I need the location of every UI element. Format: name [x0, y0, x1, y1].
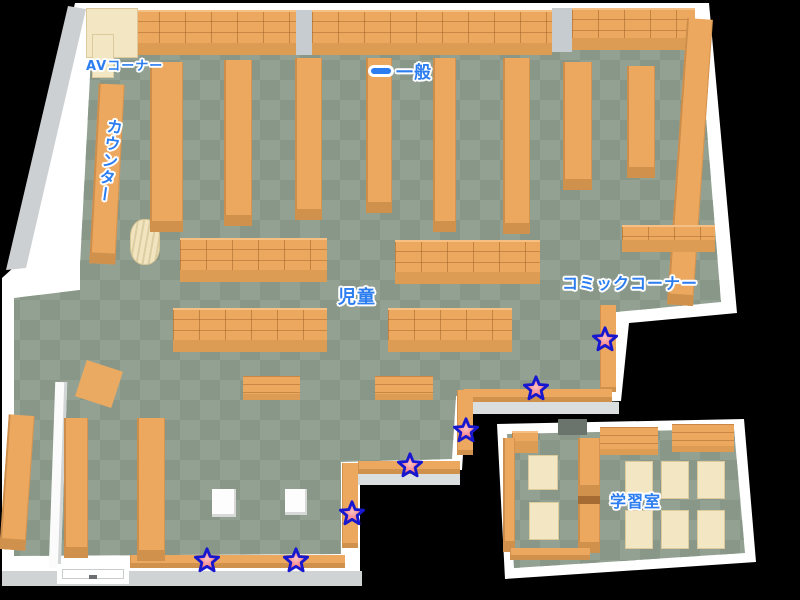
study-bookshelf [512, 431, 538, 453]
label-study-room: 学習室 [610, 488, 661, 512]
library-map: AVコーナー カウンター 一般 児童 コミックコーナー 学習室 [0, 0, 800, 600]
star-marker-icon[interactable] [281, 545, 311, 575]
bookshelf [563, 62, 592, 190]
study-divider-gap [578, 496, 600, 504]
low-table [243, 376, 300, 400]
study-room-doorway [558, 419, 587, 435]
bookshelf [433, 58, 456, 232]
study-desk [697, 461, 725, 499]
wall-bookshelf [572, 8, 695, 50]
study-bookshelf [672, 424, 734, 452]
comic-bookshelf [622, 225, 715, 252]
study-desk [697, 510, 725, 549]
study-desk [529, 502, 559, 540]
study-desk [661, 510, 689, 549]
study-divider-shelf [578, 504, 600, 553]
study-desk [528, 455, 558, 490]
star-marker-icon[interactable] [337, 498, 367, 528]
children-bookshelf [388, 308, 512, 352]
children-bookshelf [395, 240, 540, 284]
low-table [375, 376, 433, 400]
star-marker-icon[interactable] [590, 324, 620, 354]
bookshelf [137, 418, 165, 561]
entrance-door [57, 564, 129, 584]
study-divider-shelf [578, 438, 600, 496]
children-bookshelf [180, 238, 327, 282]
label-leader-line [371, 68, 391, 74]
bookshelf [150, 62, 183, 232]
wall-bookshelf [133, 10, 296, 55]
pillar [552, 8, 572, 52]
label-comic-corner: コミックコーナー [562, 270, 698, 294]
children-bookshelf [173, 308, 327, 352]
bookshelf [224, 60, 252, 226]
reading-table [285, 489, 307, 515]
study-bookshelf [503, 438, 515, 552]
step-wall-face [464, 402, 619, 414]
star-marker-icon[interactable] [395, 450, 425, 480]
wall-bookshelf [312, 10, 552, 55]
bookshelf [627, 66, 655, 178]
star-marker-icon[interactable] [451, 415, 481, 445]
label-children: 児童 [338, 283, 376, 309]
bookshelf [503, 58, 530, 234]
star-marker-icon[interactable] [521, 373, 551, 403]
label-av-corner: AVコーナー [86, 55, 163, 74]
bookshelf [64, 418, 88, 558]
study-desk [625, 510, 653, 549]
pillar [296, 10, 312, 55]
reading-table [212, 489, 236, 517]
study-desk [661, 461, 689, 499]
bookshelf [295, 58, 322, 220]
label-general: 一般 [396, 58, 432, 83]
star-marker-icon[interactable] [192, 545, 222, 575]
door-handle-icon [89, 575, 97, 579]
study-bookshelf [510, 548, 590, 560]
bookshelf [366, 58, 392, 213]
study-bookshelf [600, 427, 658, 455]
